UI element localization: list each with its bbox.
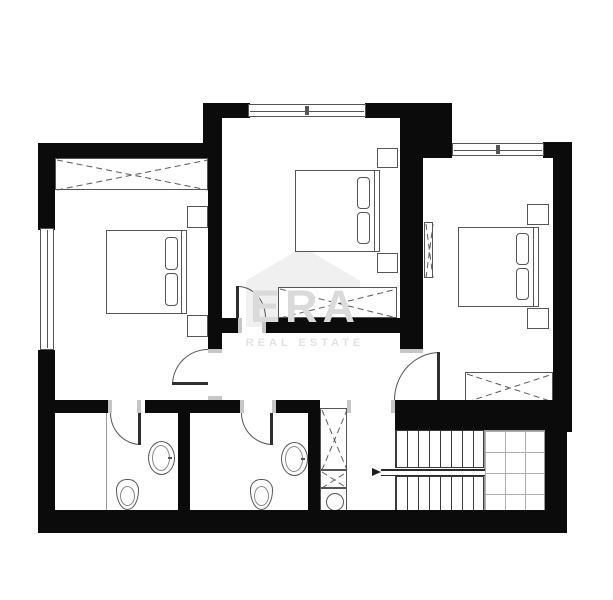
bed-right-bedroom-pillow bbox=[516, 268, 529, 300]
bed-left-bedroom-headboard bbox=[181, 230, 187, 314]
toilet-bathroom-2 bbox=[250, 479, 273, 510]
outer-wall-west-lower bbox=[38, 350, 55, 512]
door-jamb bbox=[272, 400, 276, 413]
wall-bathroom-divider bbox=[178, 413, 190, 512]
wall-bathroom2-east bbox=[308, 400, 320, 512]
crossed-dashed-lines-icon bbox=[56, 159, 209, 191]
wall-left-bedroom-east bbox=[208, 155, 222, 349]
shower-partition-bathroom-1 bbox=[106, 413, 107, 510]
sink-bathroom-1 bbox=[148, 441, 175, 475]
wardrobe-right-bedroom bbox=[465, 372, 553, 402]
stair-flight-upper bbox=[395, 430, 484, 468]
bed-right-bedroom-pillow bbox=[516, 233, 529, 265]
crossed-dashed-lines-icon bbox=[466, 373, 554, 403]
door-jamb bbox=[347, 400, 351, 413]
door-left-bedroom-swing-arc bbox=[172, 349, 208, 385]
bed-left-bedroom-pillow bbox=[165, 237, 178, 270]
bed-right-bedroom-headboard bbox=[533, 227, 539, 307]
wardrobe-left-bedroom bbox=[55, 158, 208, 190]
sink-tap-icon bbox=[301, 458, 305, 460]
crossed-dashed-lines-icon bbox=[425, 223, 434, 279]
crossed-dashed-lines-icon bbox=[321, 409, 348, 471]
watermark-tagline-text: REAL ESTATE bbox=[226, 337, 384, 349]
floor-plan: ERA REAL ESTATE bbox=[0, 0, 613, 600]
window-glazing-line bbox=[47, 230, 48, 348]
bed-left-bedroom-pillow bbox=[165, 273, 178, 306]
bed-left-bedroom-nightstand bbox=[187, 315, 208, 337]
bed-middle-bedroom-pillow bbox=[357, 212, 370, 244]
closet-hall-small bbox=[320, 470, 347, 488]
bed-right-bedroom-nightstand bbox=[527, 204, 549, 225]
washer-drum-icon bbox=[326, 493, 344, 511]
bed-middle-bedroom-nightstand bbox=[377, 253, 398, 273]
door-bathroom-1-leaf bbox=[138, 413, 141, 445]
door-jamb bbox=[208, 349, 222, 353]
wall-step-left-middle bbox=[203, 103, 222, 158]
door-jamb bbox=[400, 349, 423, 353]
door-bathroom-2-swing-arc bbox=[241, 413, 273, 445]
toilet-bowl-icon bbox=[254, 486, 269, 506]
sink-bathroom-2 bbox=[281, 442, 308, 476]
stair-direction-arrow bbox=[372, 468, 381, 476]
door-jamb bbox=[391, 400, 395, 413]
door-jamb bbox=[208, 396, 222, 400]
sink-tap-icon bbox=[168, 457, 172, 459]
door-bathroom-2-leaf bbox=[270, 413, 273, 445]
toilet-bowl-icon bbox=[120, 486, 135, 506]
outer-wall-south bbox=[38, 510, 567, 533]
wall-stair-north bbox=[395, 400, 572, 430]
stair-flight-lower bbox=[395, 476, 484, 512]
outer-wall-north-middle-west bbox=[222, 103, 250, 118]
outer-wall-east bbox=[553, 142, 572, 432]
bed-middle-bedroom-pillow bbox=[357, 177, 370, 209]
door-jamb bbox=[108, 400, 112, 413]
stair-rail bbox=[381, 469, 485, 476]
bed-middle-bedroom-headboard bbox=[374, 170, 380, 252]
closet-hall-tall bbox=[320, 408, 347, 470]
outer-wall-north-left-bedroom bbox=[38, 143, 222, 158]
door-left-bedroom-leaf bbox=[172, 382, 208, 385]
watermark-brand-text: ERA bbox=[236, 283, 374, 330]
window-mullion bbox=[496, 145, 500, 154]
stair-landing bbox=[484, 430, 545, 512]
bed-middle-bedroom-nightstand bbox=[377, 148, 398, 168]
toilet-bathroom-1 bbox=[116, 479, 139, 510]
crossed-dashed-lines-icon bbox=[321, 471, 348, 489]
door-right-bedroom-swing-arc bbox=[394, 352, 440, 400]
wall-bathroom1-north-west bbox=[38, 400, 108, 413]
door-right-bedroom-leaf bbox=[437, 352, 440, 400]
window-mullion bbox=[305, 106, 309, 115]
door-jamb bbox=[137, 400, 141, 413]
door-bathroom-1-swing-arc bbox=[110, 413, 141, 445]
bed-left-bedroom-nightstand bbox=[187, 206, 208, 228]
window-left-bedroom-west bbox=[40, 228, 54, 350]
bed-right-bedroom-nightstand bbox=[527, 308, 549, 329]
door-jamb bbox=[240, 400, 244, 413]
radiator-right-bedroom bbox=[424, 222, 433, 278]
wall-bathroom1-north-east bbox=[145, 400, 240, 413]
wall-middle-right-divider bbox=[400, 118, 423, 349]
